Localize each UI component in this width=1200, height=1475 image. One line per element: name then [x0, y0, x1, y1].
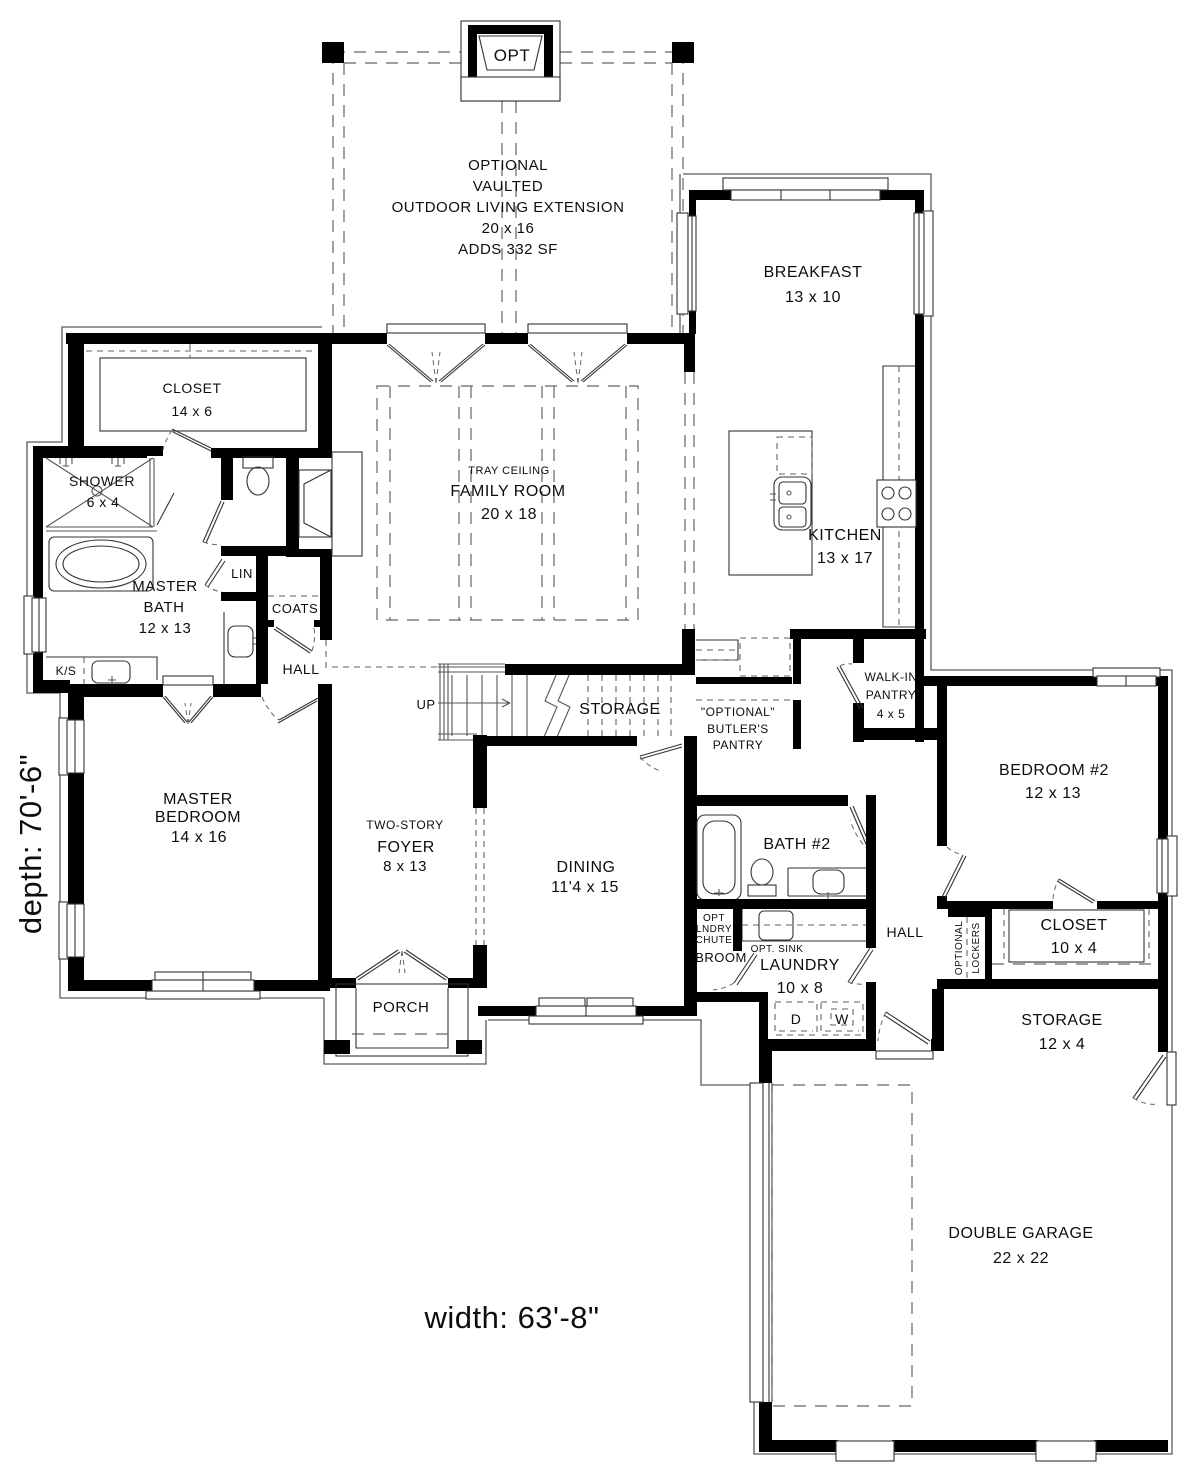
svg-text:KITCHEN: KITCHEN: [808, 527, 882, 544]
svg-text:12 x 13: 12 x 13: [139, 620, 192, 637]
svg-text:BEDROOM: BEDROOM: [155, 809, 241, 826]
svg-text:MASTER: MASTER: [132, 578, 198, 595]
svg-text:6 x 4: 6 x 4: [87, 494, 120, 510]
svg-text:BROOM: BROOM: [695, 950, 747, 965]
svg-text:CLOSET: CLOSET: [1040, 917, 1107, 934]
svg-text:OUTDOOR LIVING EXTENSION: OUTDOOR LIVING EXTENSION: [392, 199, 625, 216]
svg-text:13 x 17: 13 x 17: [817, 550, 873, 567]
svg-text:HALL: HALL: [282, 661, 319, 677]
svg-text:FAMILY ROOM: FAMILY ROOM: [450, 483, 565, 500]
svg-text:8 x 13: 8 x 13: [383, 858, 427, 875]
svg-text:12 x 13: 12 x 13: [1025, 785, 1081, 802]
svg-text:22 x 22: 22 x 22: [993, 1250, 1049, 1267]
svg-text:10 x 8: 10 x 8: [777, 980, 824, 997]
svg-text:4 x 5: 4 x 5: [877, 707, 906, 721]
svg-text:D: D: [791, 1011, 802, 1027]
svg-text:HALL: HALL: [886, 924, 923, 940]
svg-text:WALK-IN: WALK-IN: [864, 670, 917, 684]
svg-text:STORAGE: STORAGE: [579, 701, 660, 718]
svg-text:CHUTE: CHUTE: [696, 935, 733, 946]
svg-text:PORCH: PORCH: [373, 999, 430, 1016]
svg-text:"OPTIONAL": "OPTIONAL": [701, 705, 775, 719]
svg-text:OPT. SINK: OPT. SINK: [751, 944, 804, 955]
svg-text:SHOWER: SHOWER: [69, 473, 135, 489]
svg-text:11'4 x 15: 11'4 x 15: [551, 879, 619, 896]
svg-text:PANTRY: PANTRY: [866, 688, 917, 702]
svg-text:OPTIONAL: OPTIONAL: [468, 157, 548, 174]
svg-text:OPT: OPT: [494, 46, 530, 65]
svg-text:14 x 6: 14 x 6: [171, 403, 212, 419]
svg-text:COATS: COATS: [272, 601, 318, 616]
svg-text:TRAY CEILING: TRAY CEILING: [468, 465, 549, 477]
svg-text:10 x 4: 10 x 4: [1051, 940, 1098, 957]
svg-text:MASTER: MASTER: [163, 791, 233, 808]
svg-text:PANTRY: PANTRY: [713, 738, 764, 752]
svg-text:LAUNDRY: LAUNDRY: [760, 957, 840, 974]
svg-text:depth: 70'-6": depth: 70'-6": [13, 754, 48, 934]
svg-text:STORAGE: STORAGE: [1021, 1012, 1102, 1029]
svg-text:DOUBLE GARAGE: DOUBLE GARAGE: [948, 1225, 1093, 1242]
svg-text:LIN: LIN: [231, 566, 253, 581]
svg-text:BREAKFAST: BREAKFAST: [764, 264, 863, 281]
svg-text:VAULTED: VAULTED: [473, 178, 543, 195]
svg-text:LNDRY: LNDRY: [696, 924, 732, 935]
svg-text:ADDS 332 SF: ADDS 332 SF: [458, 241, 558, 258]
svg-text:BEDROOM #2: BEDROOM #2: [999, 762, 1109, 779]
svg-text:CLOSET: CLOSET: [162, 380, 221, 396]
svg-text:12 x 4: 12 x 4: [1039, 1036, 1086, 1053]
svg-text:DINING: DINING: [557, 859, 616, 876]
svg-text:LOCKERS: LOCKERS: [971, 922, 982, 973]
svg-text:BUTLER'S: BUTLER'S: [707, 722, 769, 736]
svg-text:20 x 18: 20 x 18: [481, 506, 537, 523]
svg-text:BATH: BATH: [144, 599, 185, 616]
svg-text:13 x 10: 13 x 10: [785, 289, 841, 306]
svg-text:OPT: OPT: [703, 913, 725, 924]
svg-text:20 x 16: 20 x 16: [482, 220, 535, 237]
svg-text:14 x 16: 14 x 16: [171, 829, 227, 846]
svg-text:BATH #2: BATH #2: [763, 836, 830, 853]
svg-text:FOYER: FOYER: [377, 839, 435, 856]
svg-text:K/S: K/S: [56, 664, 77, 678]
svg-text:TWO-STORY: TWO-STORY: [366, 818, 443, 832]
svg-text:UP: UP: [416, 697, 435, 712]
svg-text:OPTIONAL: OPTIONAL: [954, 921, 965, 976]
svg-text:W: W: [835, 1011, 849, 1027]
svg-text:width: 63'-8": width: 63'-8": [423, 1300, 599, 1335]
